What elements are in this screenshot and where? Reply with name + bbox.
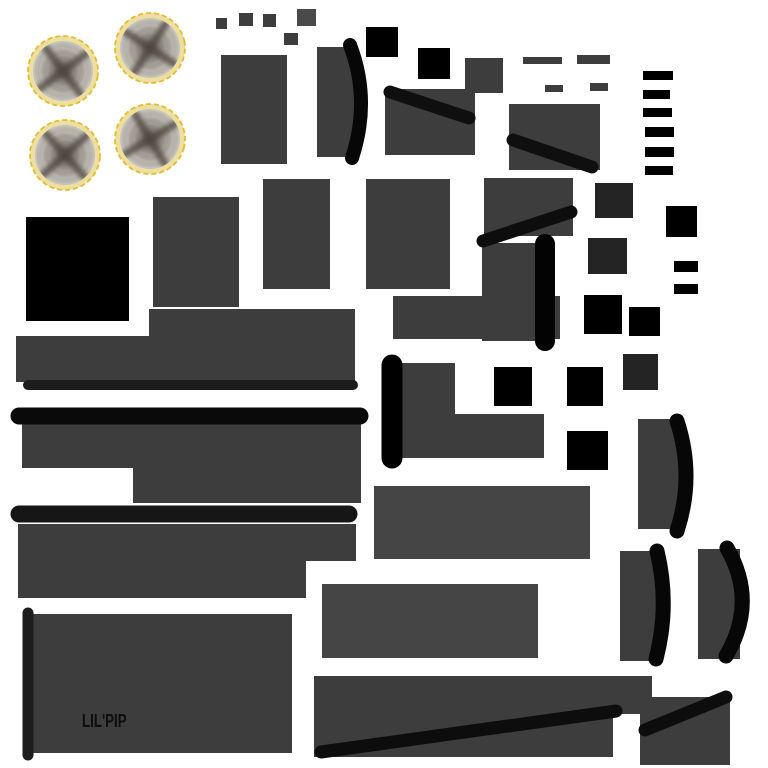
clip-a [674,261,698,272]
label-panel [33,614,292,753]
step-a-bottom [16,336,355,382]
black-sq-5 [629,307,660,336]
rung-3 [643,108,672,117]
texture-atlas: LIL'PIP [0,0,768,768]
panel-j [322,584,538,658]
dark-sq-2 [588,238,627,274]
step-b-bottom [133,468,361,503]
rung-1 [643,71,673,80]
tab-b [577,55,610,64]
panel-i [374,486,590,559]
clip-b [674,284,698,294]
rung-6 [645,166,673,175]
small-sq-3 [263,14,276,27]
wheel-bot-left [28,118,102,192]
rung-5 [645,147,674,157]
small-sq-1 [216,18,227,29]
step-a-top [149,309,355,337]
tab-d [590,83,608,91]
step-b-top [22,424,361,468]
step-c-bottom [18,560,306,598]
wheel-top-right [108,6,191,89]
small-sq-2 [239,13,253,26]
black-sq-6 [494,367,532,406]
panel-e [366,179,450,289]
panel-d [263,179,330,289]
panel-g [153,197,239,307]
panel-a [221,55,287,164]
panel-h [393,296,560,339]
black-sq-7 [567,367,603,406]
rung-4 [645,127,674,137]
black-sq-8 [567,431,608,470]
dark-sq-1 [595,183,633,218]
black-sq-4 [584,295,622,334]
dark-sq-3 [623,354,658,390]
wheel-top-left [23,31,102,110]
rung-2 [643,90,670,99]
tab-c [545,85,563,92]
black-sq-big [26,217,129,321]
step-c-top [18,524,356,561]
black-sq-1 [366,27,398,57]
wheel-bot-right [108,97,193,182]
lshape-bottom [389,414,544,458]
small-panel-a [465,58,503,93]
black-sq-2 [418,48,450,79]
small-sq-4 [297,9,316,26]
texture-label: LIL'PIP [82,712,127,730]
texture-atlas-canvas [0,0,768,768]
tab-a [523,57,562,64]
small-sq-5 [284,33,298,45]
black-sq-3 [666,206,697,237]
curve-band-c [656,551,663,659]
